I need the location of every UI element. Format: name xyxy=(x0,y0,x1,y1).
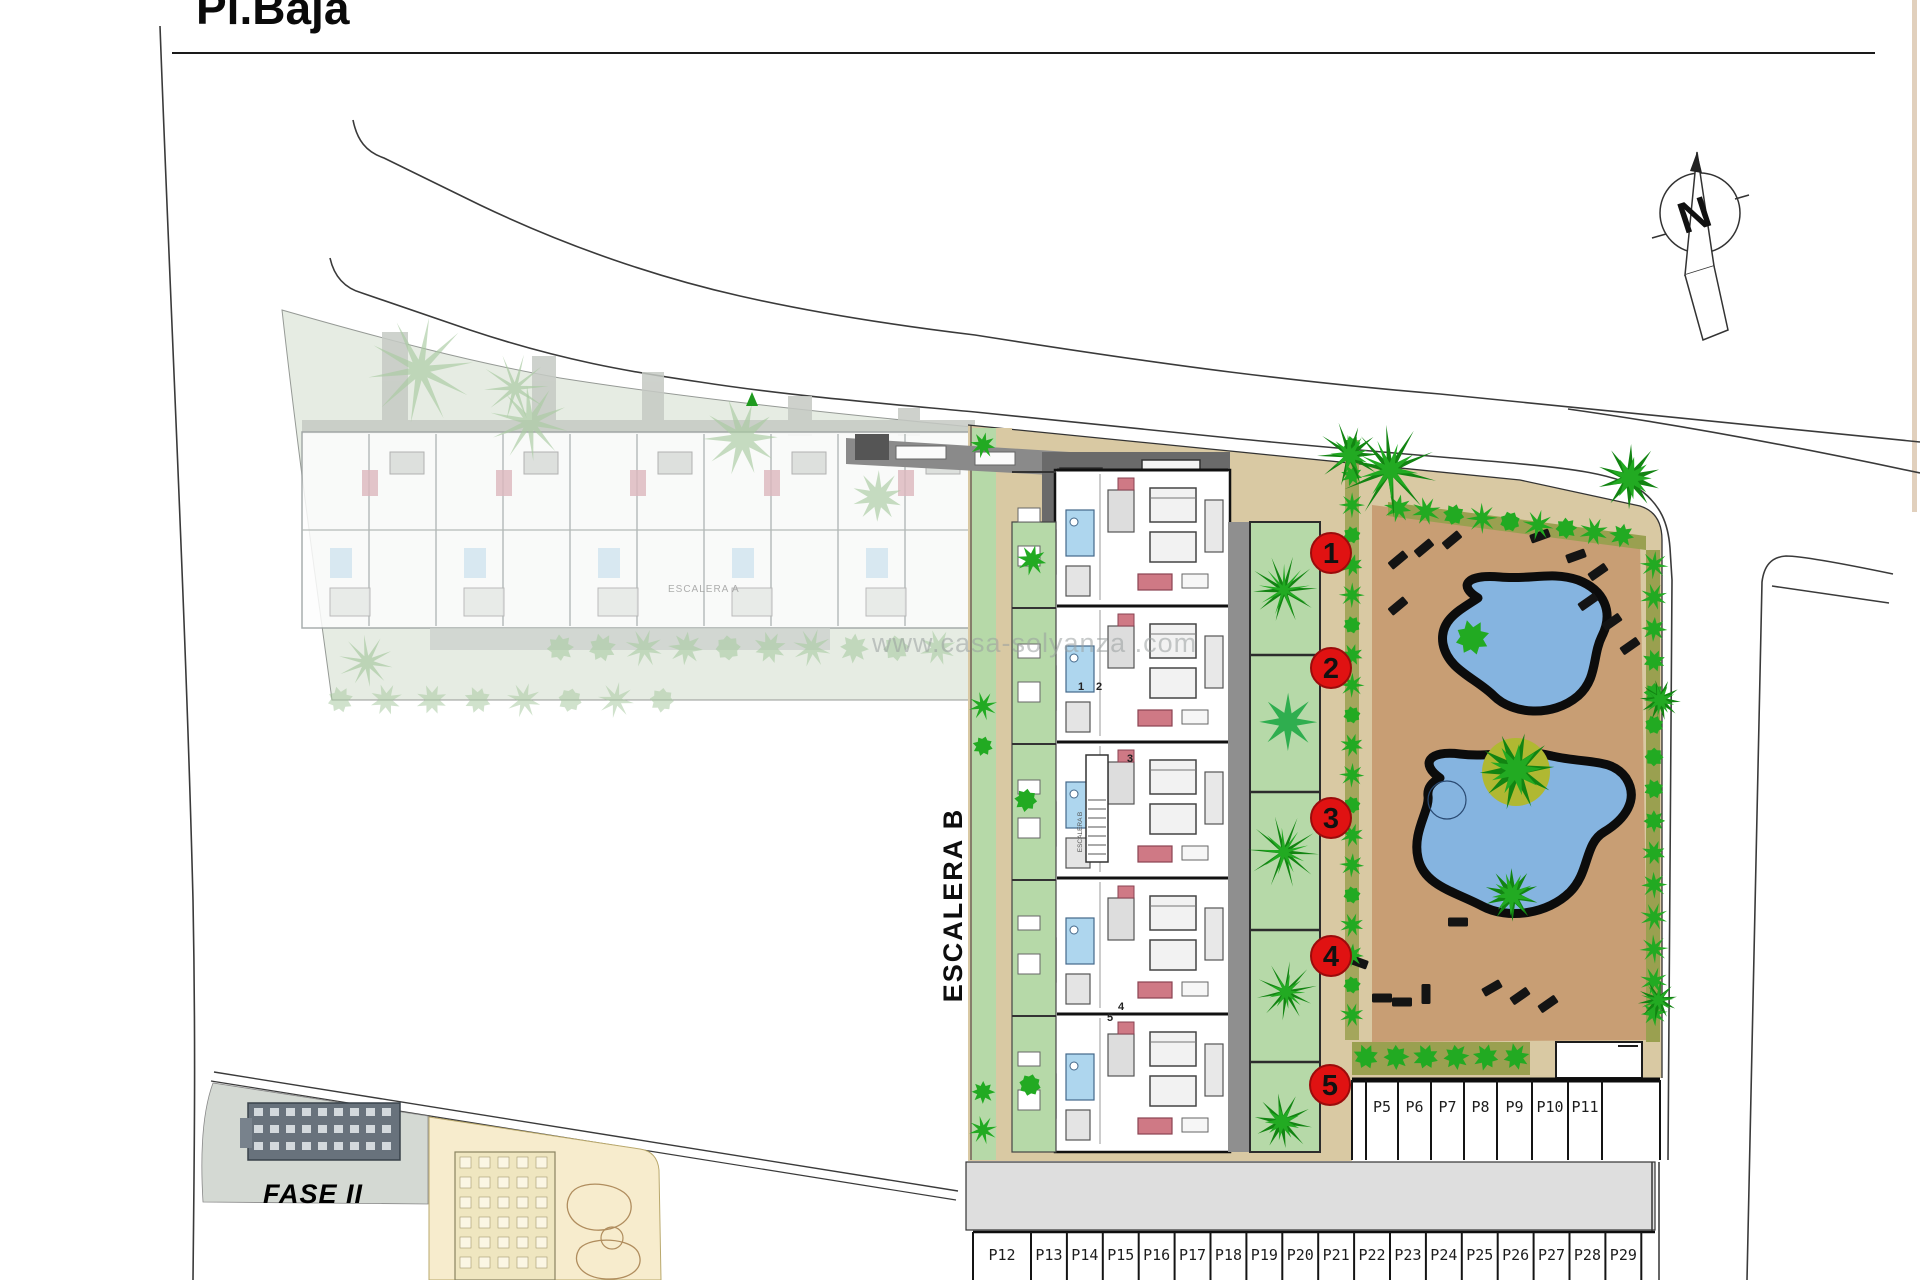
road-left-edge xyxy=(160,26,195,1280)
phase2-inset: FASE II xyxy=(202,1072,958,1280)
parking-stall-label: P28 xyxy=(1574,1246,1601,1264)
unit-marker-number: 1 xyxy=(1323,538,1339,570)
parking-stall-label: P6 xyxy=(1405,1098,1423,1116)
parking-stall-label: P21 xyxy=(1323,1246,1350,1264)
parking-stall-label: P19 xyxy=(1251,1246,1278,1264)
unit-marker-2[interactable]: 2 xyxy=(1311,648,1351,688)
escalera-a-label: ESCALERA A xyxy=(668,584,740,595)
left-green-strip xyxy=(972,428,996,1160)
road-side-stub xyxy=(1772,586,1889,603)
parking-stall-label: P25 xyxy=(1466,1246,1493,1264)
parking-stall-label: P11 xyxy=(1571,1098,1598,1116)
site-plan-canvas: Pl.Baja ESCALERA A xyxy=(0,0,1920,1280)
parking-stall-label: P12 xyxy=(988,1246,1015,1264)
parking-stall-label: P15 xyxy=(1107,1246,1134,1264)
parking-stall-label: P26 xyxy=(1502,1246,1529,1264)
sun-lounger-icon xyxy=(1392,998,1412,1007)
page-title: Pl.Baja xyxy=(196,0,350,34)
road-side-right-edge xyxy=(1747,556,1893,1280)
parking-stall-label: P8 xyxy=(1471,1098,1489,1116)
parking-stall-label: P27 xyxy=(1538,1246,1565,1264)
phase2-mini-building xyxy=(240,1103,400,1160)
parking-stall-label: P7 xyxy=(1438,1098,1456,1116)
small-tree-icon xyxy=(746,392,758,406)
unit-marker-3[interactable]: 3 xyxy=(1311,798,1351,838)
watermark: www.casa-solyanza .com xyxy=(871,628,1197,658)
unit-marker-4[interactable]: 4 xyxy=(1311,936,1351,976)
unit-plan-number: 2 xyxy=(1096,681,1102,693)
unit-marker-1[interactable]: 1 xyxy=(1311,533,1351,573)
parking-stall-label: P29 xyxy=(1610,1246,1637,1264)
sun-lounger-icon xyxy=(1372,994,1392,1003)
sun-lounger-icon xyxy=(1422,984,1431,1004)
north-arrow: N xyxy=(1652,152,1749,340)
parking-stall-label: P5 xyxy=(1373,1098,1391,1116)
sun-lounger-icon xyxy=(1448,918,1468,927)
unit-marker-number: 4 xyxy=(1323,941,1339,973)
fase-ii-label: FASE II xyxy=(263,1179,363,1209)
parking-stall-label: P14 xyxy=(1071,1246,1098,1264)
parking-stall-label: P22 xyxy=(1359,1246,1386,1264)
parking-stall-label: P9 xyxy=(1505,1098,1523,1116)
parking-stall-label: P17 xyxy=(1179,1246,1206,1264)
unit-plan-number: 3 xyxy=(1127,753,1133,765)
parking-stall-label: P18 xyxy=(1215,1246,1242,1264)
unit-marker-number: 3 xyxy=(1323,803,1339,835)
unit-plan-number: 4 xyxy=(1118,1001,1125,1013)
storage-box xyxy=(1556,1042,1642,1078)
north-letter: N xyxy=(1672,187,1717,243)
unit-marker-number: 5 xyxy=(1322,1070,1338,1102)
parking-stall-label: P13 xyxy=(1035,1246,1062,1264)
page-edge-strip xyxy=(1912,0,1917,512)
unit-marker-5[interactable]: 5 xyxy=(1310,1065,1350,1105)
parking-stall-label: P16 xyxy=(1143,1246,1170,1264)
unit-plan-number: 5 xyxy=(1107,1012,1113,1024)
parking-stall-label: P20 xyxy=(1287,1246,1314,1264)
parking-stall-label: P23 xyxy=(1394,1246,1421,1264)
site-plan-page: Pl.Baja ESCALERA A xyxy=(0,0,1920,1280)
escalera-b-inner-label: ESCALERA B xyxy=(1077,812,1084,852)
escalera-b-label: ESCALERA B xyxy=(938,808,968,1003)
unit-marker-number: 2 xyxy=(1323,653,1339,685)
parking-stall-label: P10 xyxy=(1536,1098,1563,1116)
parking-row-lower: P12P13P14P15P16P17P18P19P20P21P22P23P24P… xyxy=(973,1232,1655,1280)
page-header: Pl.Baja xyxy=(172,0,1875,53)
unit-plan-number: 1 xyxy=(1078,681,1084,693)
parking-stall-label: P24 xyxy=(1430,1246,1457,1264)
